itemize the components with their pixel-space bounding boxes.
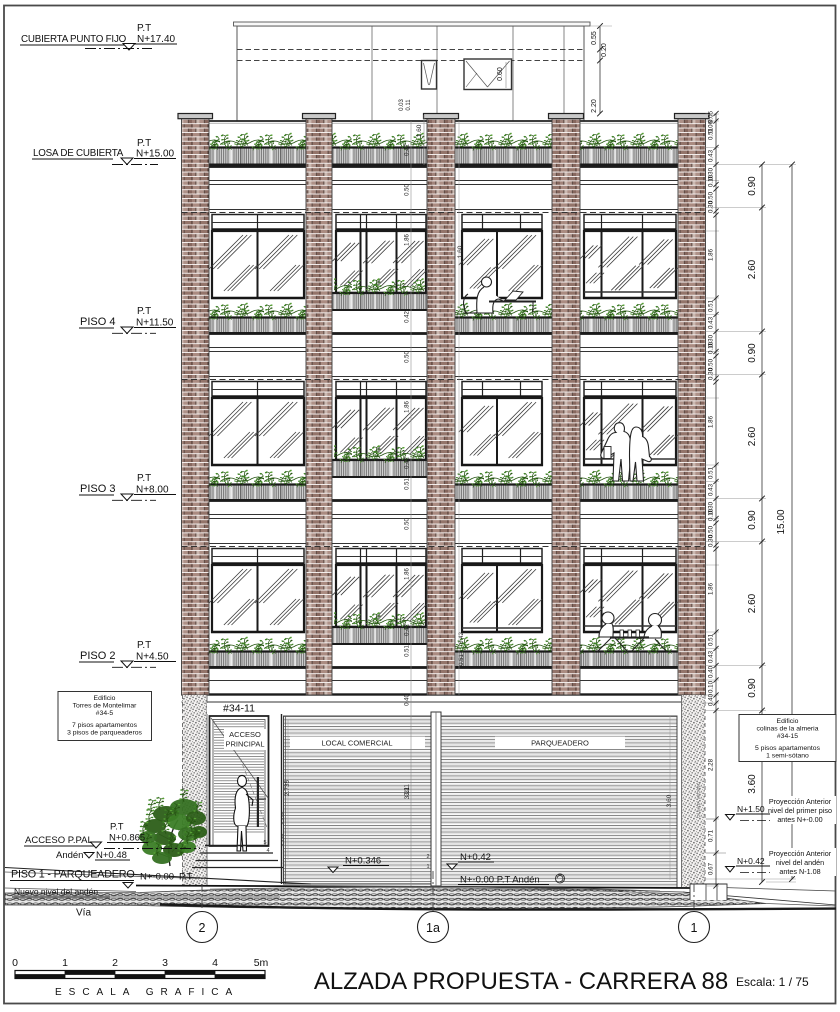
svg-text:0.60: 0.60: [497, 67, 504, 81]
svg-text:0: 0: [12, 957, 18, 969]
svg-text:Edificio: Edificio: [777, 718, 799, 725]
svg-text:P.T: P.T: [137, 306, 151, 317]
svg-text:1: 1: [426, 864, 429, 870]
svg-text:0.50: 0.50: [405, 351, 411, 363]
svg-text:PISO 4: PISO 4: [80, 316, 115, 328]
svg-text:N+0.346: N+0.346: [345, 856, 381, 867]
svg-text:1.86: 1.86: [405, 401, 411, 413]
svg-text:0.90: 0.90: [747, 678, 758, 698]
svg-text:2.20: 2.20: [591, 99, 598, 113]
svg-text:4: 4: [212, 957, 218, 969]
svg-text:ACCESO P.PAL: ACCESO P.PAL: [25, 835, 93, 846]
svg-text:0.42: 0.42: [459, 632, 465, 644]
svg-text:0.43: 0.43: [708, 483, 715, 496]
svg-text:Escala: 1 / 75: Escala: 1 / 75: [736, 975, 809, 989]
svg-text:0.42: 0.42: [405, 144, 411, 156]
svg-text:1.86: 1.86: [708, 248, 715, 261]
svg-text:PISO 3: PISO 3: [80, 483, 115, 495]
svg-text:1.60: 1.60: [416, 124, 423, 137]
svg-text:N+-0.00: N+-0.00: [140, 872, 174, 883]
svg-text:3: 3: [162, 957, 168, 969]
svg-text:CUBIERTA PUNTO FIJO: CUBIERTA PUNTO FIJO: [21, 34, 127, 45]
svg-text:1: 1: [62, 957, 68, 969]
svg-text:5: 5: [263, 840, 266, 846]
svg-text:0.51: 0.51: [405, 645, 411, 657]
svg-text:N+17.40: N+17.40: [137, 34, 176, 45]
svg-text:1.86: 1.86: [708, 415, 715, 428]
svg-text:N+0.42: N+0.42: [460, 852, 491, 863]
svg-text:0.51: 0.51: [459, 654, 465, 666]
svg-text:0.67: 0.67: [708, 862, 715, 875]
svg-text:0.51: 0.51: [708, 633, 715, 646]
svg-text:1: 1: [691, 921, 698, 935]
svg-text:0.42: 0.42: [405, 311, 411, 323]
svg-text:P.T: P.T: [137, 640, 151, 651]
svg-text:1a: 1a: [426, 921, 440, 935]
svg-text:2.60: 2.60: [747, 426, 758, 446]
svg-text:N+11.50: N+11.50: [136, 318, 174, 329]
svg-text:2.60: 2.60: [747, 259, 758, 279]
svg-text:N+0.42: N+0.42: [737, 856, 765, 866]
svg-text:N+-0.00 P.T Andén: N+-0.00 P.T Andén: [460, 875, 540, 886]
svg-text:0.10: 0.10: [708, 508, 715, 521]
svg-text:0.40: 0.40: [708, 665, 715, 678]
svg-text:0.40: 0.40: [405, 694, 411, 706]
svg-text:N+4.50: N+4.50: [136, 652, 169, 663]
svg-text:0.43: 0.43: [708, 149, 715, 162]
svg-text:N+0.865: N+0.865: [109, 833, 145, 844]
svg-text:0.42: 0.42: [405, 624, 411, 636]
svg-text:2: 2: [426, 854, 429, 860]
svg-text:N+8.00: N+8.00: [136, 485, 169, 496]
svg-text:PISO 2: PISO 2: [80, 650, 115, 662]
svg-text:PARQUEADERO: PARQUEADERO: [531, 739, 589, 748]
svg-text:PRINCIPAL: PRINCIPAL: [225, 740, 264, 749]
svg-text:0.10: 0.10: [708, 680, 715, 693]
svg-text:5m: 5m: [254, 957, 269, 969]
svg-text:antes N-1.08: antes N-1.08: [779, 867, 820, 876]
svg-text:0.51: 0.51: [708, 466, 715, 479]
svg-text:P.T: P.T: [137, 138, 151, 149]
svg-text:#34-5: #34-5: [96, 710, 114, 717]
svg-text:Proyección Anterior: Proyección Anterior: [769, 797, 832, 806]
svg-text:0.71: 0.71: [708, 829, 715, 842]
svg-text:15.00: 15.00: [776, 509, 787, 534]
svg-text:0.90: 0.90: [747, 510, 758, 530]
svg-text:3 pisos de parqueaderos: 3 pisos de parqueaderos: [67, 730, 142, 737]
svg-text:#34-15: #34-15: [777, 733, 798, 740]
svg-text:0.03: 0.03: [399, 99, 405, 111]
svg-text:PISO 1 - PARQUEADERO: PISO 1 - PARQUEADERO: [11, 869, 135, 881]
svg-text:1.86: 1.86: [405, 568, 411, 580]
svg-text:1 semi-sótano: 1 semi-sótano: [766, 753, 809, 760]
svg-text:2: 2: [112, 957, 118, 969]
svg-text:0.40: 0.40: [708, 693, 715, 706]
svg-text:0.43: 0.43: [708, 316, 715, 329]
svg-text:colinas de la almeria: colinas de la almeria: [757, 726, 819, 733]
svg-text:7 pisos apartamentos: 7 pisos apartamentos: [72, 722, 138, 729]
svg-text:Nuevo nivel del andén: Nuevo nivel del andén: [14, 887, 98, 897]
svg-text:P.T: P.T: [137, 473, 151, 484]
svg-text:P.T: P.T: [179, 872, 193, 883]
svg-text:N+15.00: N+15.00: [136, 149, 175, 160]
svg-text:5 pisos apartamentos: 5 pisos apartamentos: [755, 745, 821, 752]
svg-text:2.735: 2.735: [284, 779, 291, 796]
svg-text:N+0.48: N+0.48: [96, 850, 127, 861]
svg-text:Proyección Anterior: Proyección Anterior: [769, 849, 832, 858]
svg-text:0.30: 0.30: [708, 534, 715, 547]
svg-text:ESCALA GRAFICA: ESCALA GRAFICA: [55, 987, 239, 998]
svg-text:4: 4: [266, 848, 269, 854]
svg-text:0.51: 0.51: [405, 478, 411, 490]
svg-text:2: 2: [199, 921, 206, 935]
svg-text:0.51: 0.51: [708, 127, 715, 140]
svg-text:1.86: 1.86: [405, 234, 411, 246]
svg-text:LOCAL COMERCIAL: LOCAL COMERCIAL: [322, 739, 393, 748]
svg-text:3.60: 3.60: [666, 794, 673, 807]
svg-text:0.50: 0.50: [405, 518, 411, 530]
svg-text:0.10: 0.10: [708, 174, 715, 187]
svg-text:1.60: 1.60: [457, 245, 464, 258]
svg-text:N+1.50: N+1.50: [737, 804, 765, 814]
svg-text:0.43: 0.43: [708, 650, 715, 663]
svg-text:2.60: 2.60: [747, 593, 758, 613]
svg-text:0.30: 0.30: [708, 200, 715, 213]
svg-text:0.11: 0.11: [406, 99, 412, 111]
svg-text:1.86: 1.86: [708, 582, 715, 595]
svg-text:0.50: 0.50: [405, 184, 411, 196]
svg-text:3.60: 3.60: [747, 774, 758, 794]
svg-text:3.21: 3.21: [405, 784, 411, 796]
svg-text:0.10: 0.10: [708, 341, 715, 354]
svg-text:Edificio: Edificio: [94, 695, 116, 702]
svg-text:0.42: 0.42: [405, 457, 411, 469]
svg-text:0.90: 0.90: [747, 343, 758, 363]
svg-text:#34-11: #34-11: [223, 703, 255, 715]
svg-text:0.55: 0.55: [591, 31, 598, 45]
svg-text:ALZADA PROPUESTA - CARRERA 88: ALZADA PROPUESTA - CARRERA 88: [314, 968, 728, 995]
svg-text:nivel del primer piso: nivel del primer piso: [768, 806, 832, 815]
svg-text:Torres de Montelimar: Torres de Montelimar: [73, 703, 138, 710]
svg-text:Andén: Andén: [56, 850, 83, 861]
svg-text:P.T: P.T: [110, 822, 124, 833]
svg-text:CULATA VECINO: CULATA VECINO: [696, 782, 701, 818]
svg-text:nivel del andén: nivel del andén: [776, 858, 824, 867]
svg-text:0.20: 0.20: [601, 43, 608, 57]
svg-text:ACCESO: ACCESO: [229, 730, 261, 739]
svg-text:antes N+-0.00: antes N+-0.00: [777, 815, 822, 824]
svg-text:0.90: 0.90: [747, 176, 758, 196]
svg-text:0.51: 0.51: [708, 299, 715, 312]
svg-text:2.28: 2.28: [708, 758, 715, 771]
svg-text:LOSA DE CUBIERTA: LOSA DE CUBIERTA: [33, 148, 124, 159]
svg-text:P.T: P.T: [137, 23, 151, 34]
svg-text:Vía: Vía: [76, 908, 91, 919]
svg-text:0.30: 0.30: [708, 367, 715, 380]
